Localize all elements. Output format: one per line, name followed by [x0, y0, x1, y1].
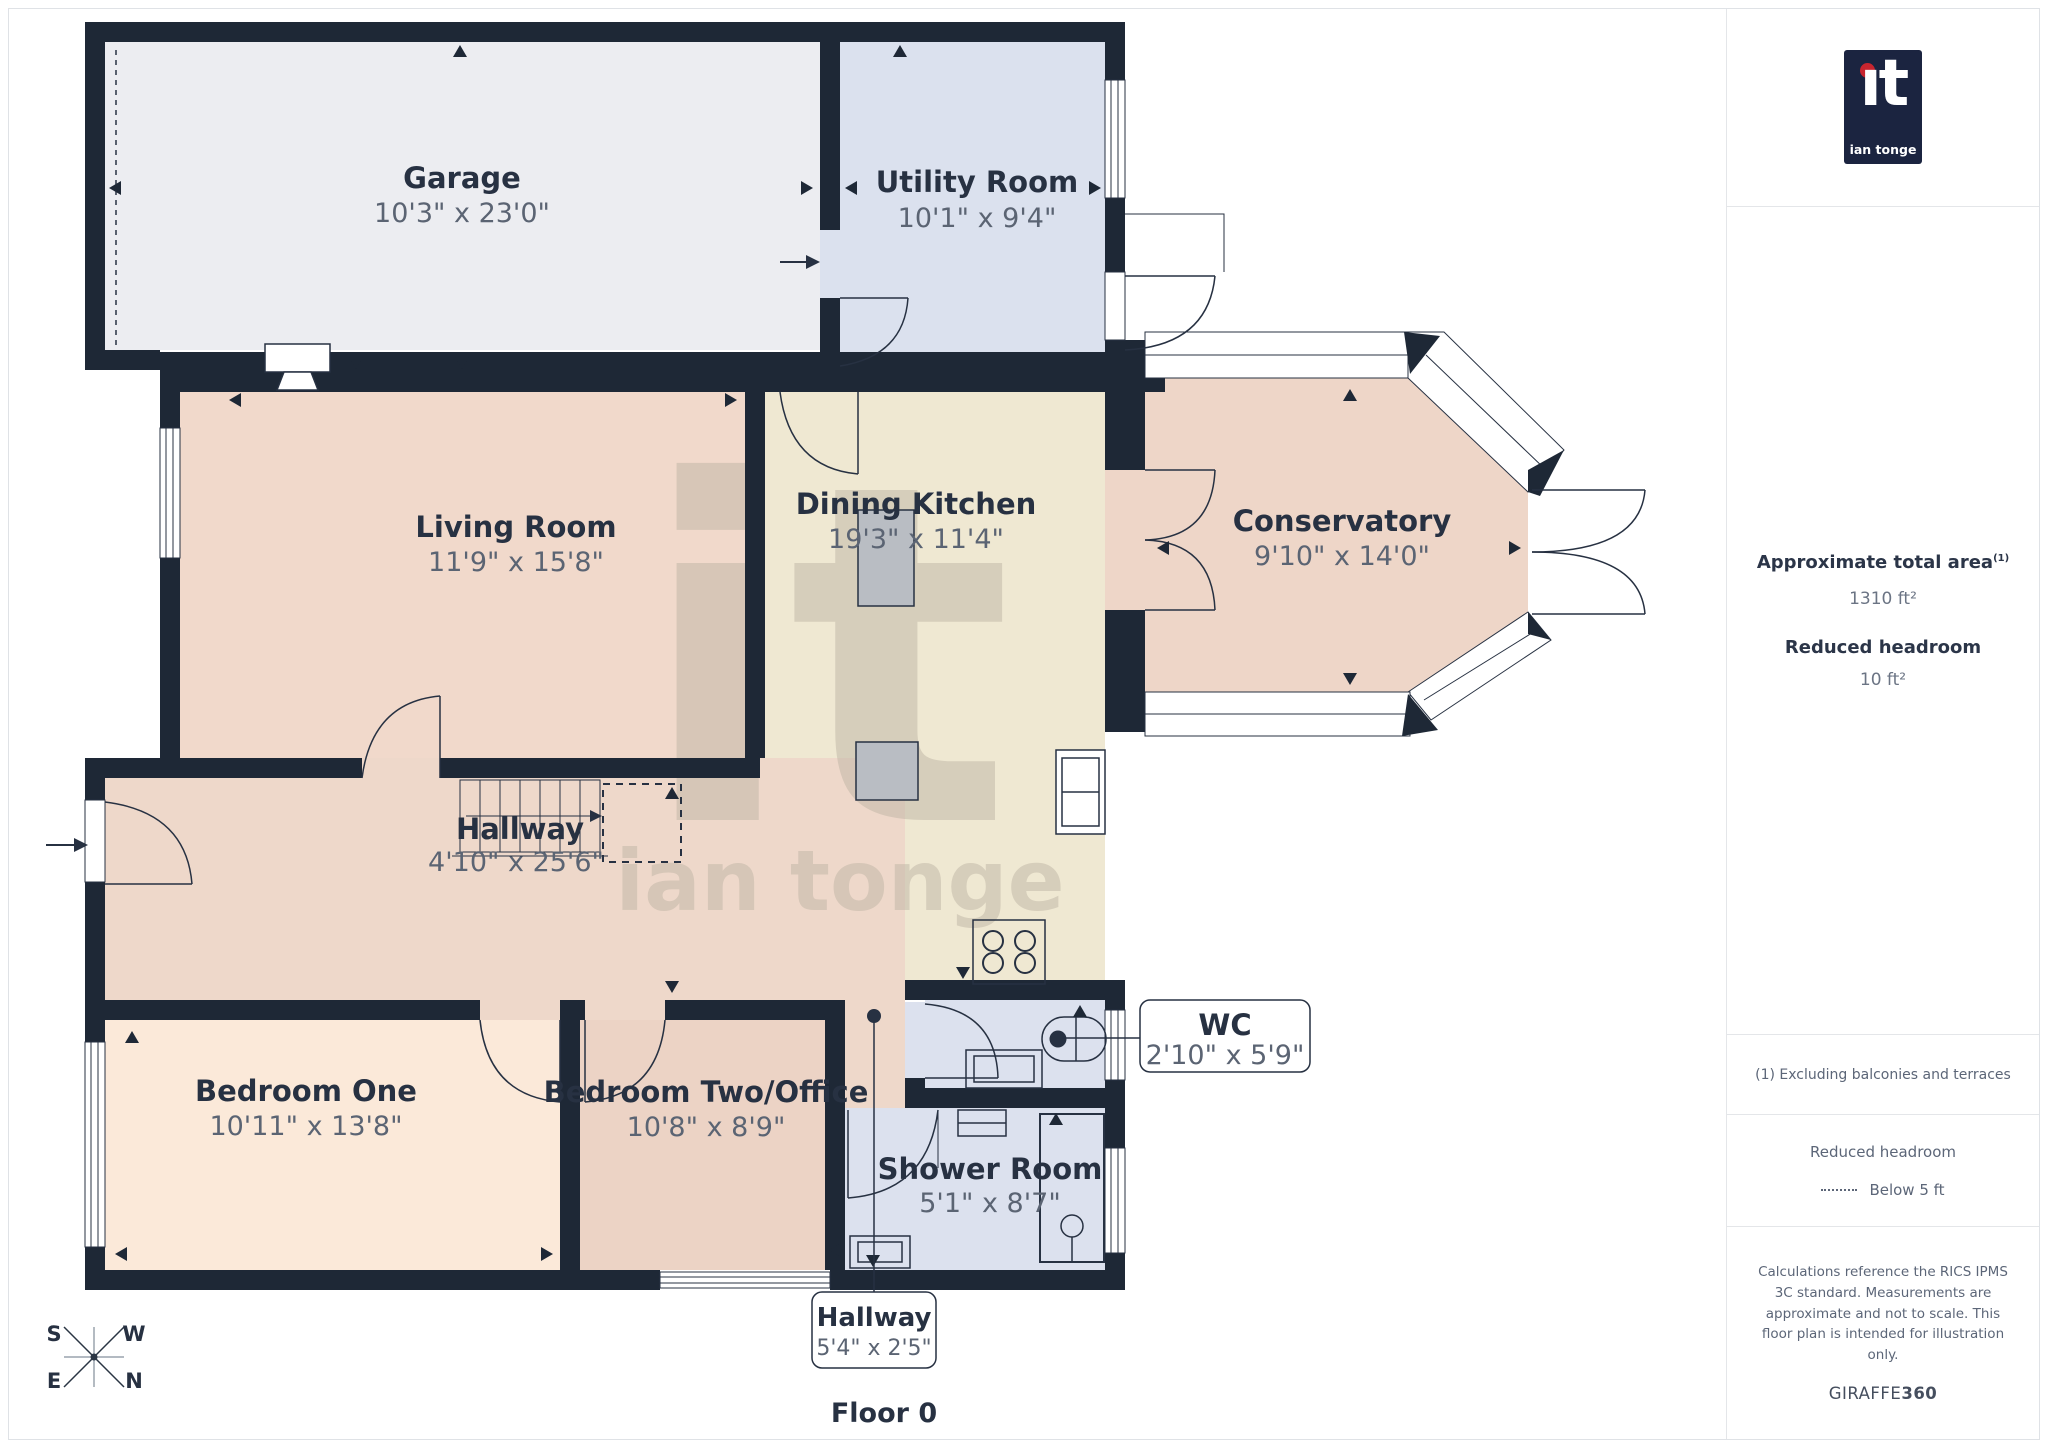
logo-name: ian tonge: [1844, 142, 1922, 157]
wc-door-gap: [905, 1002, 925, 1078]
logo-section: ıt ian tonge: [1727, 8, 2039, 207]
svg-text:9'10" x 14'0": 9'10" x 14'0": [1254, 541, 1430, 572]
total-area-title: Approximate total area(1): [1757, 552, 2009, 573]
compass: S W E N: [46, 1322, 145, 1393]
bed2-door-gap: [585, 1000, 665, 1020]
conservatory-door-gap: [1105, 470, 1145, 610]
svg-text:Shower Room: Shower Room: [878, 1152, 1103, 1186]
svg-text:Utility Room: Utility Room: [876, 165, 1079, 199]
watermark: it ian tonge: [615, 384, 1064, 931]
floor-label: Floor 0: [831, 1398, 937, 1429]
disclaimer-section: Calculations reference the RICS IPMS 3C …: [1727, 1227, 2039, 1438]
svg-text:11'9" x 15'8": 11'9" x 15'8": [428, 547, 604, 578]
svg-text:Living Room: Living Room: [415, 510, 616, 544]
compass-n: N: [125, 1369, 143, 1393]
svg-text:10'3" x 23'0": 10'3" x 23'0": [374, 198, 550, 229]
logo-mark: ıt: [1860, 52, 1907, 116]
utility-exterior-door: [1125, 214, 1224, 350]
window-bedroom1-left: [85, 1042, 105, 1247]
svg-text:10'11" x 13'8": 10'11" x 13'8": [209, 1111, 402, 1142]
kitchen-sink: [1056, 750, 1105, 834]
garage-floor: [105, 42, 820, 350]
bedroom1-floor: [105, 1020, 560, 1270]
window-bedroom2-bottom: [660, 1272, 830, 1288]
info-sidebar: ıt ian tonge Approximate total area(1) 1…: [1726, 8, 2039, 1440]
bedroom2-floor: [580, 1020, 825, 1270]
dotted-line-icon: [1821, 1189, 1857, 1191]
total-area-value: 1310 ft²: [1849, 589, 1917, 609]
area-footnote-marker: (1): [1993, 553, 2009, 564]
front-entry-arrow: [46, 838, 88, 852]
window-utility-right: [1105, 80, 1125, 198]
svg-text:10'1" x 9'4": 10'1" x 9'4": [898, 203, 1057, 234]
svg-text:Hallway: Hallway: [456, 812, 584, 846]
svg-text:Garage: Garage: [403, 161, 521, 195]
window-wc-right: [1105, 1010, 1125, 1080]
conservatory-french-doors: [1532, 490, 1645, 614]
svg-text:Bedroom Two/Office: Bedroom Two/Office: [544, 1075, 869, 1109]
area-section: Approximate total area(1) 1310 ft² Reduc…: [1727, 207, 2039, 1035]
svg-text:Conservatory: Conservatory: [1233, 504, 1452, 538]
svg-text:5'1" x 8'7": 5'1" x 8'7": [919, 1188, 1061, 1219]
disclaimer-text: Calculations reference the RICS IPMS 3C …: [1754, 1262, 2012, 1367]
reduced-headroom-value: 10 ft²: [1860, 670, 1906, 690]
legend-section: Reduced headroom Below 5 ft: [1727, 1115, 2039, 1227]
footnote-text: (1) Excluding balconies and terraces: [1735, 1067, 2031, 1083]
legend-item-label: Below 5 ft: [1869, 1181, 1944, 1199]
svg-text:10'8" x 8'9": 10'8" x 8'9": [627, 1112, 786, 1143]
reduced-headroom-title: Reduced headroom: [1785, 637, 1981, 658]
svg-text:Hallway: Hallway: [817, 1303, 932, 1333]
giraffe360-brand: GIRAFFE360: [1829, 1384, 1938, 1403]
svg-text:2'10" x 5'9": 2'10" x 5'9": [1146, 1040, 1305, 1071]
svg-text:19'3" x 11'4": 19'3" x 11'4": [828, 524, 1004, 555]
window-shower-right: [1105, 1148, 1125, 1253]
svg-text:WC: WC: [1198, 1008, 1251, 1042]
garage-utility-gap: [820, 230, 840, 298]
svg-text:4'10" x 25'6": 4'10" x 25'6": [428, 847, 604, 878]
window-living-left: [160, 428, 180, 558]
svg-text:5'4" x 2'5": 5'4" x 2'5": [816, 1336, 931, 1361]
svg-text:Bedroom One: Bedroom One: [195, 1074, 417, 1108]
kitchen-cupboard: [856, 742, 918, 800]
compass-s: S: [46, 1322, 61, 1346]
compass-w: W: [122, 1322, 145, 1346]
agency-logo: ıt ian tonge: [1844, 50, 1922, 164]
watermark-name: ian tonge: [615, 832, 1064, 930]
svg-text:Dining Kitchen: Dining Kitchen: [796, 487, 1037, 521]
compass-e: E: [47, 1369, 61, 1393]
legend-title: Reduced headroom: [1810, 1143, 1956, 1161]
living-door-gap: [362, 758, 440, 778]
note-section: (1) Excluding balconies and terraces: [1727, 1035, 2039, 1115]
bed1-door-gap: [480, 1000, 560, 1020]
